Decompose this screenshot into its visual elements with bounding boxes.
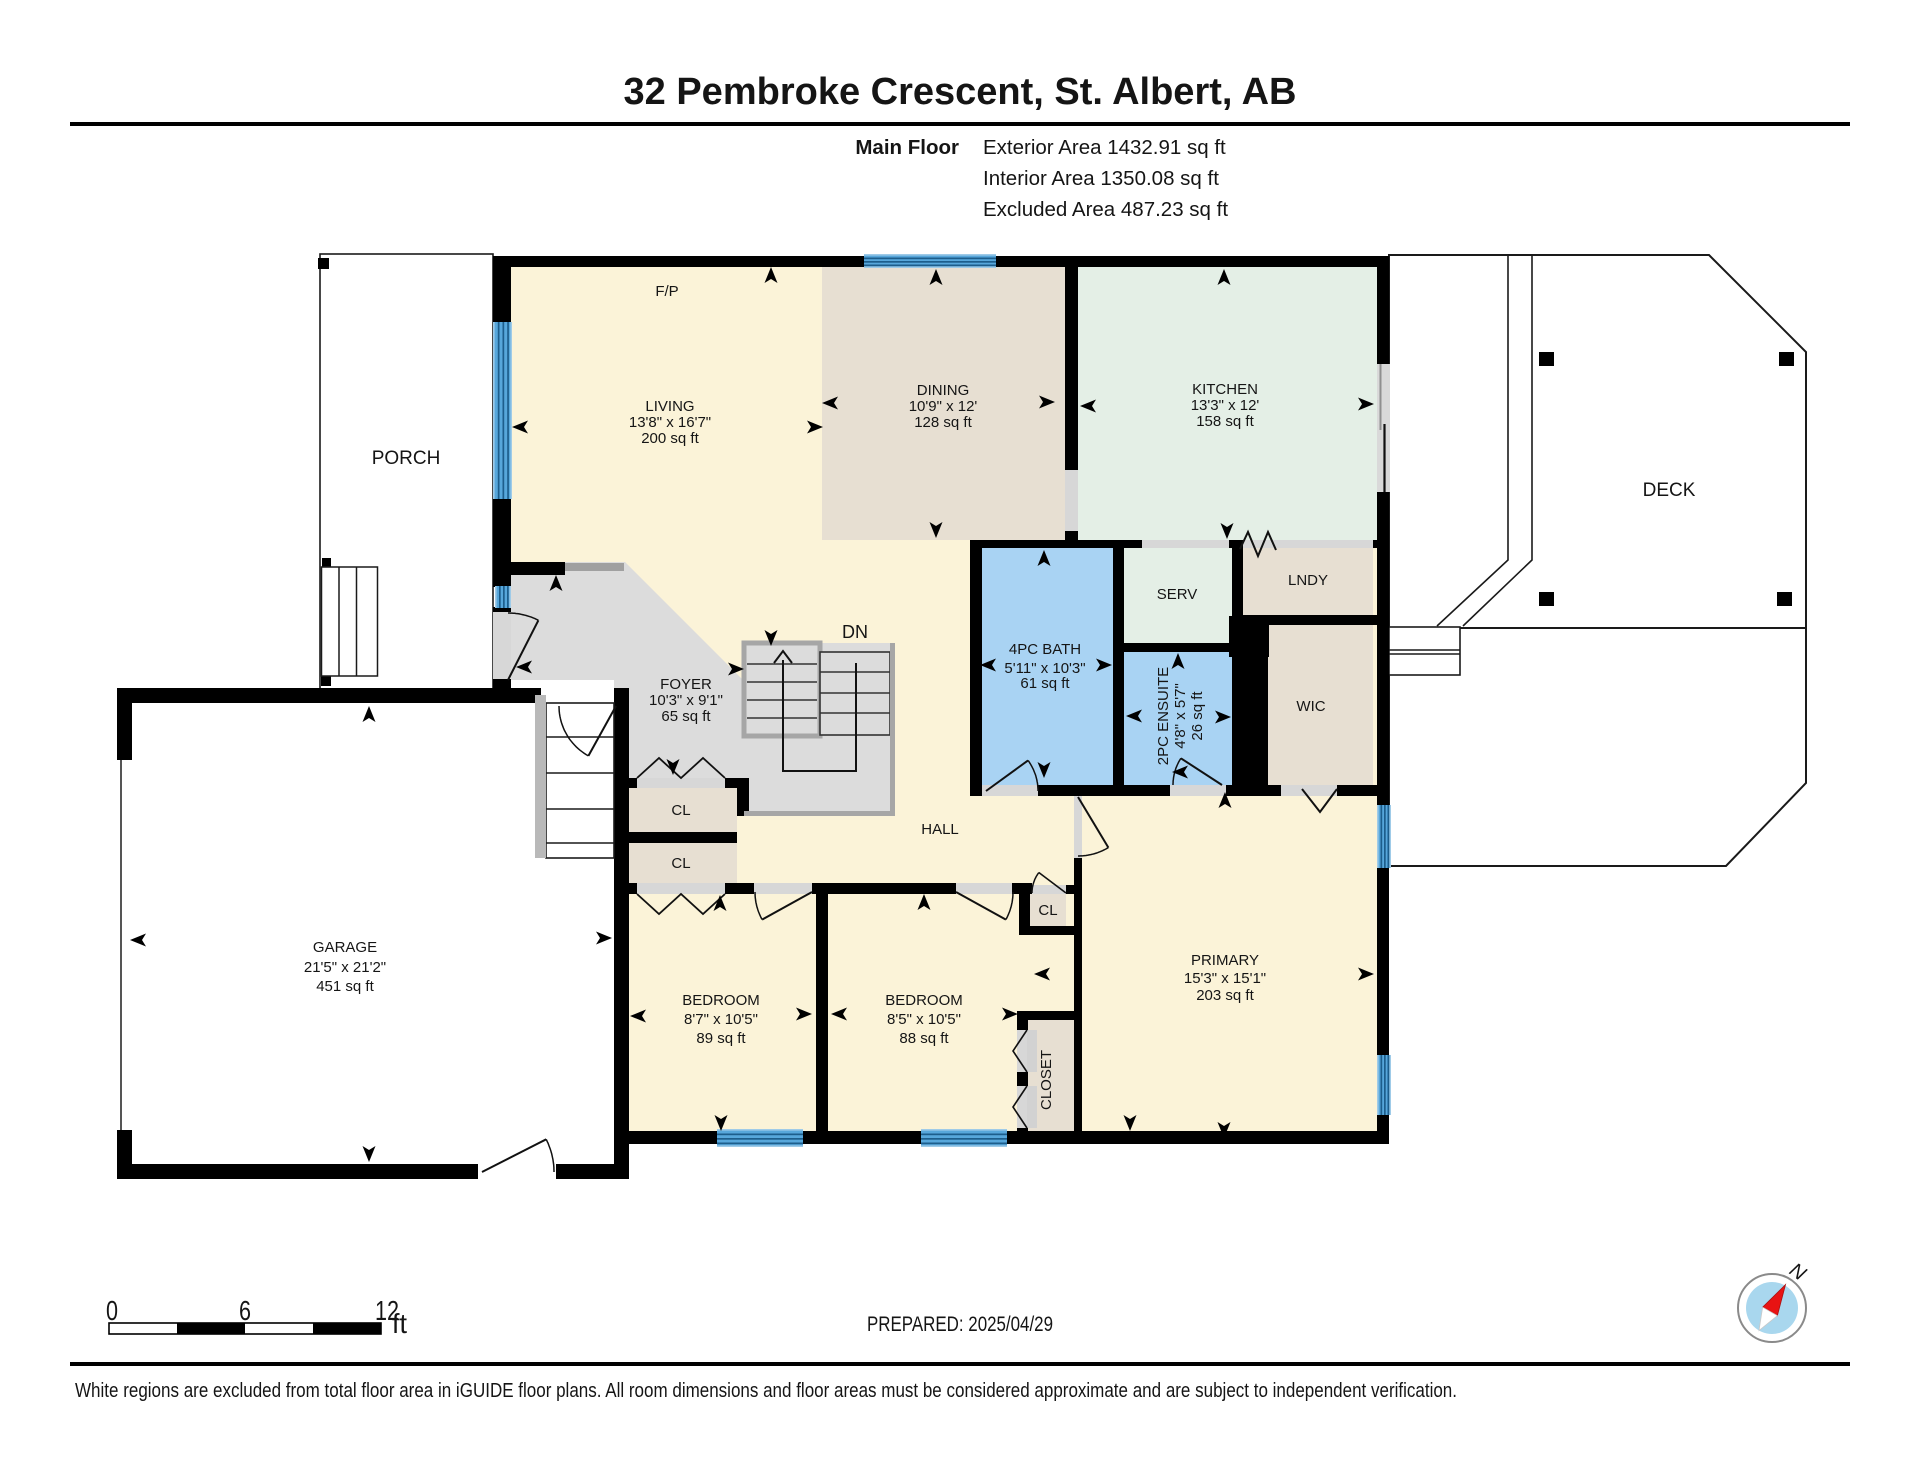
svg-text:KITCHEN: KITCHEN [1192, 381, 1258, 398]
svg-text:ft: ft [392, 1308, 407, 1339]
svg-text:CL: CL [671, 855, 690, 872]
svg-text:LNDY: LNDY [1288, 572, 1328, 589]
svg-text:6: 6 [239, 1295, 251, 1326]
svg-text:4PC BATH: 4PC BATH [1009, 641, 1081, 658]
svg-text:PREPARED: 2025/04/29: PREPARED: 2025/04/29 [867, 1313, 1053, 1336]
svg-text:CL: CL [1038, 902, 1057, 919]
svg-text:Exterior Area 1432.91 sq ft: Exterior Area 1432.91 sq ft [983, 136, 1226, 159]
svg-text:15'3" x 15'1": 15'3" x 15'1" [1184, 970, 1266, 987]
svg-text:CL: CL [671, 802, 690, 819]
svg-text:CLOSET: CLOSET [1038, 1050, 1055, 1110]
svg-text:200 sq ft: 200 sq ft [641, 430, 699, 447]
svg-text:HALL: HALL [921, 821, 959, 838]
svg-text:158 sq ft: 158 sq ft [1196, 413, 1254, 430]
svg-text:8'7" x 10'5": 8'7" x 10'5" [684, 1011, 758, 1028]
svg-text:88 sq ft: 88 sq ft [899, 1030, 949, 1047]
svg-text:451 sq ft: 451 sq ft [316, 978, 374, 995]
svg-text:13'3" x 12': 13'3" x 12' [1191, 397, 1260, 414]
svg-text:65 sq ft: 65 sq ft [661, 708, 711, 725]
svg-text:203 sq ft: 203 sq ft [1196, 987, 1254, 1004]
svg-text:4'8" x 5'7": 4'8" x 5'7" [1172, 683, 1189, 749]
svg-text:FOYER: FOYER [660, 676, 712, 693]
svg-text:13'8" x 16'7": 13'8" x 16'7" [629, 414, 711, 431]
svg-text:WIC: WIC [1296, 698, 1325, 715]
svg-text:LIVING: LIVING [645, 398, 694, 415]
svg-text:DECK: DECK [1643, 480, 1696, 501]
svg-text:BEDROOM: BEDROOM [885, 992, 963, 1009]
svg-text:10'3" x 9'1": 10'3" x 9'1" [649, 692, 723, 709]
svg-text:PRIMARY: PRIMARY [1191, 952, 1259, 969]
svg-text:32 Pembroke Crescent, St. Albe: 32 Pembroke Crescent, St. Albert, AB [624, 71, 1297, 113]
svg-text:Main Floor: Main Floor [855, 136, 959, 159]
svg-text:PORCH: PORCH [372, 448, 441, 469]
svg-text:DN: DN [842, 622, 868, 642]
svg-text:10'9" x 12': 10'9" x 12' [909, 398, 978, 415]
svg-text:White regions are excluded fro: White regions are excluded from total fl… [75, 1380, 1457, 1402]
svg-text:GARAGE: GARAGE [313, 939, 377, 956]
svg-text:8'5" x 10'5": 8'5" x 10'5" [887, 1011, 961, 1028]
svg-text:61 sq ft: 61 sq ft [1020, 675, 1070, 692]
svg-text:21'5" x 21'2": 21'5" x 21'2" [304, 959, 386, 976]
svg-text:26 sq ft: 26 sq ft [1189, 691, 1206, 741]
svg-text:DINING: DINING [917, 382, 970, 399]
svg-text:Excluded Area 487.23 sq ft: Excluded Area 487.23 sq ft [983, 198, 1228, 221]
svg-text:Interior Area 1350.08 sq ft: Interior Area 1350.08 sq ft [983, 167, 1219, 190]
svg-text:89 sq ft: 89 sq ft [696, 1030, 746, 1047]
svg-text:128 sq ft: 128 sq ft [914, 414, 972, 431]
svg-text:BEDROOM: BEDROOM [682, 992, 760, 1009]
svg-text:0: 0 [106, 1295, 118, 1326]
svg-text:2PC ENSUITE: 2PC ENSUITE [1155, 667, 1172, 765]
svg-text:SERV: SERV [1157, 586, 1198, 603]
svg-text:F/P: F/P [655, 283, 678, 300]
